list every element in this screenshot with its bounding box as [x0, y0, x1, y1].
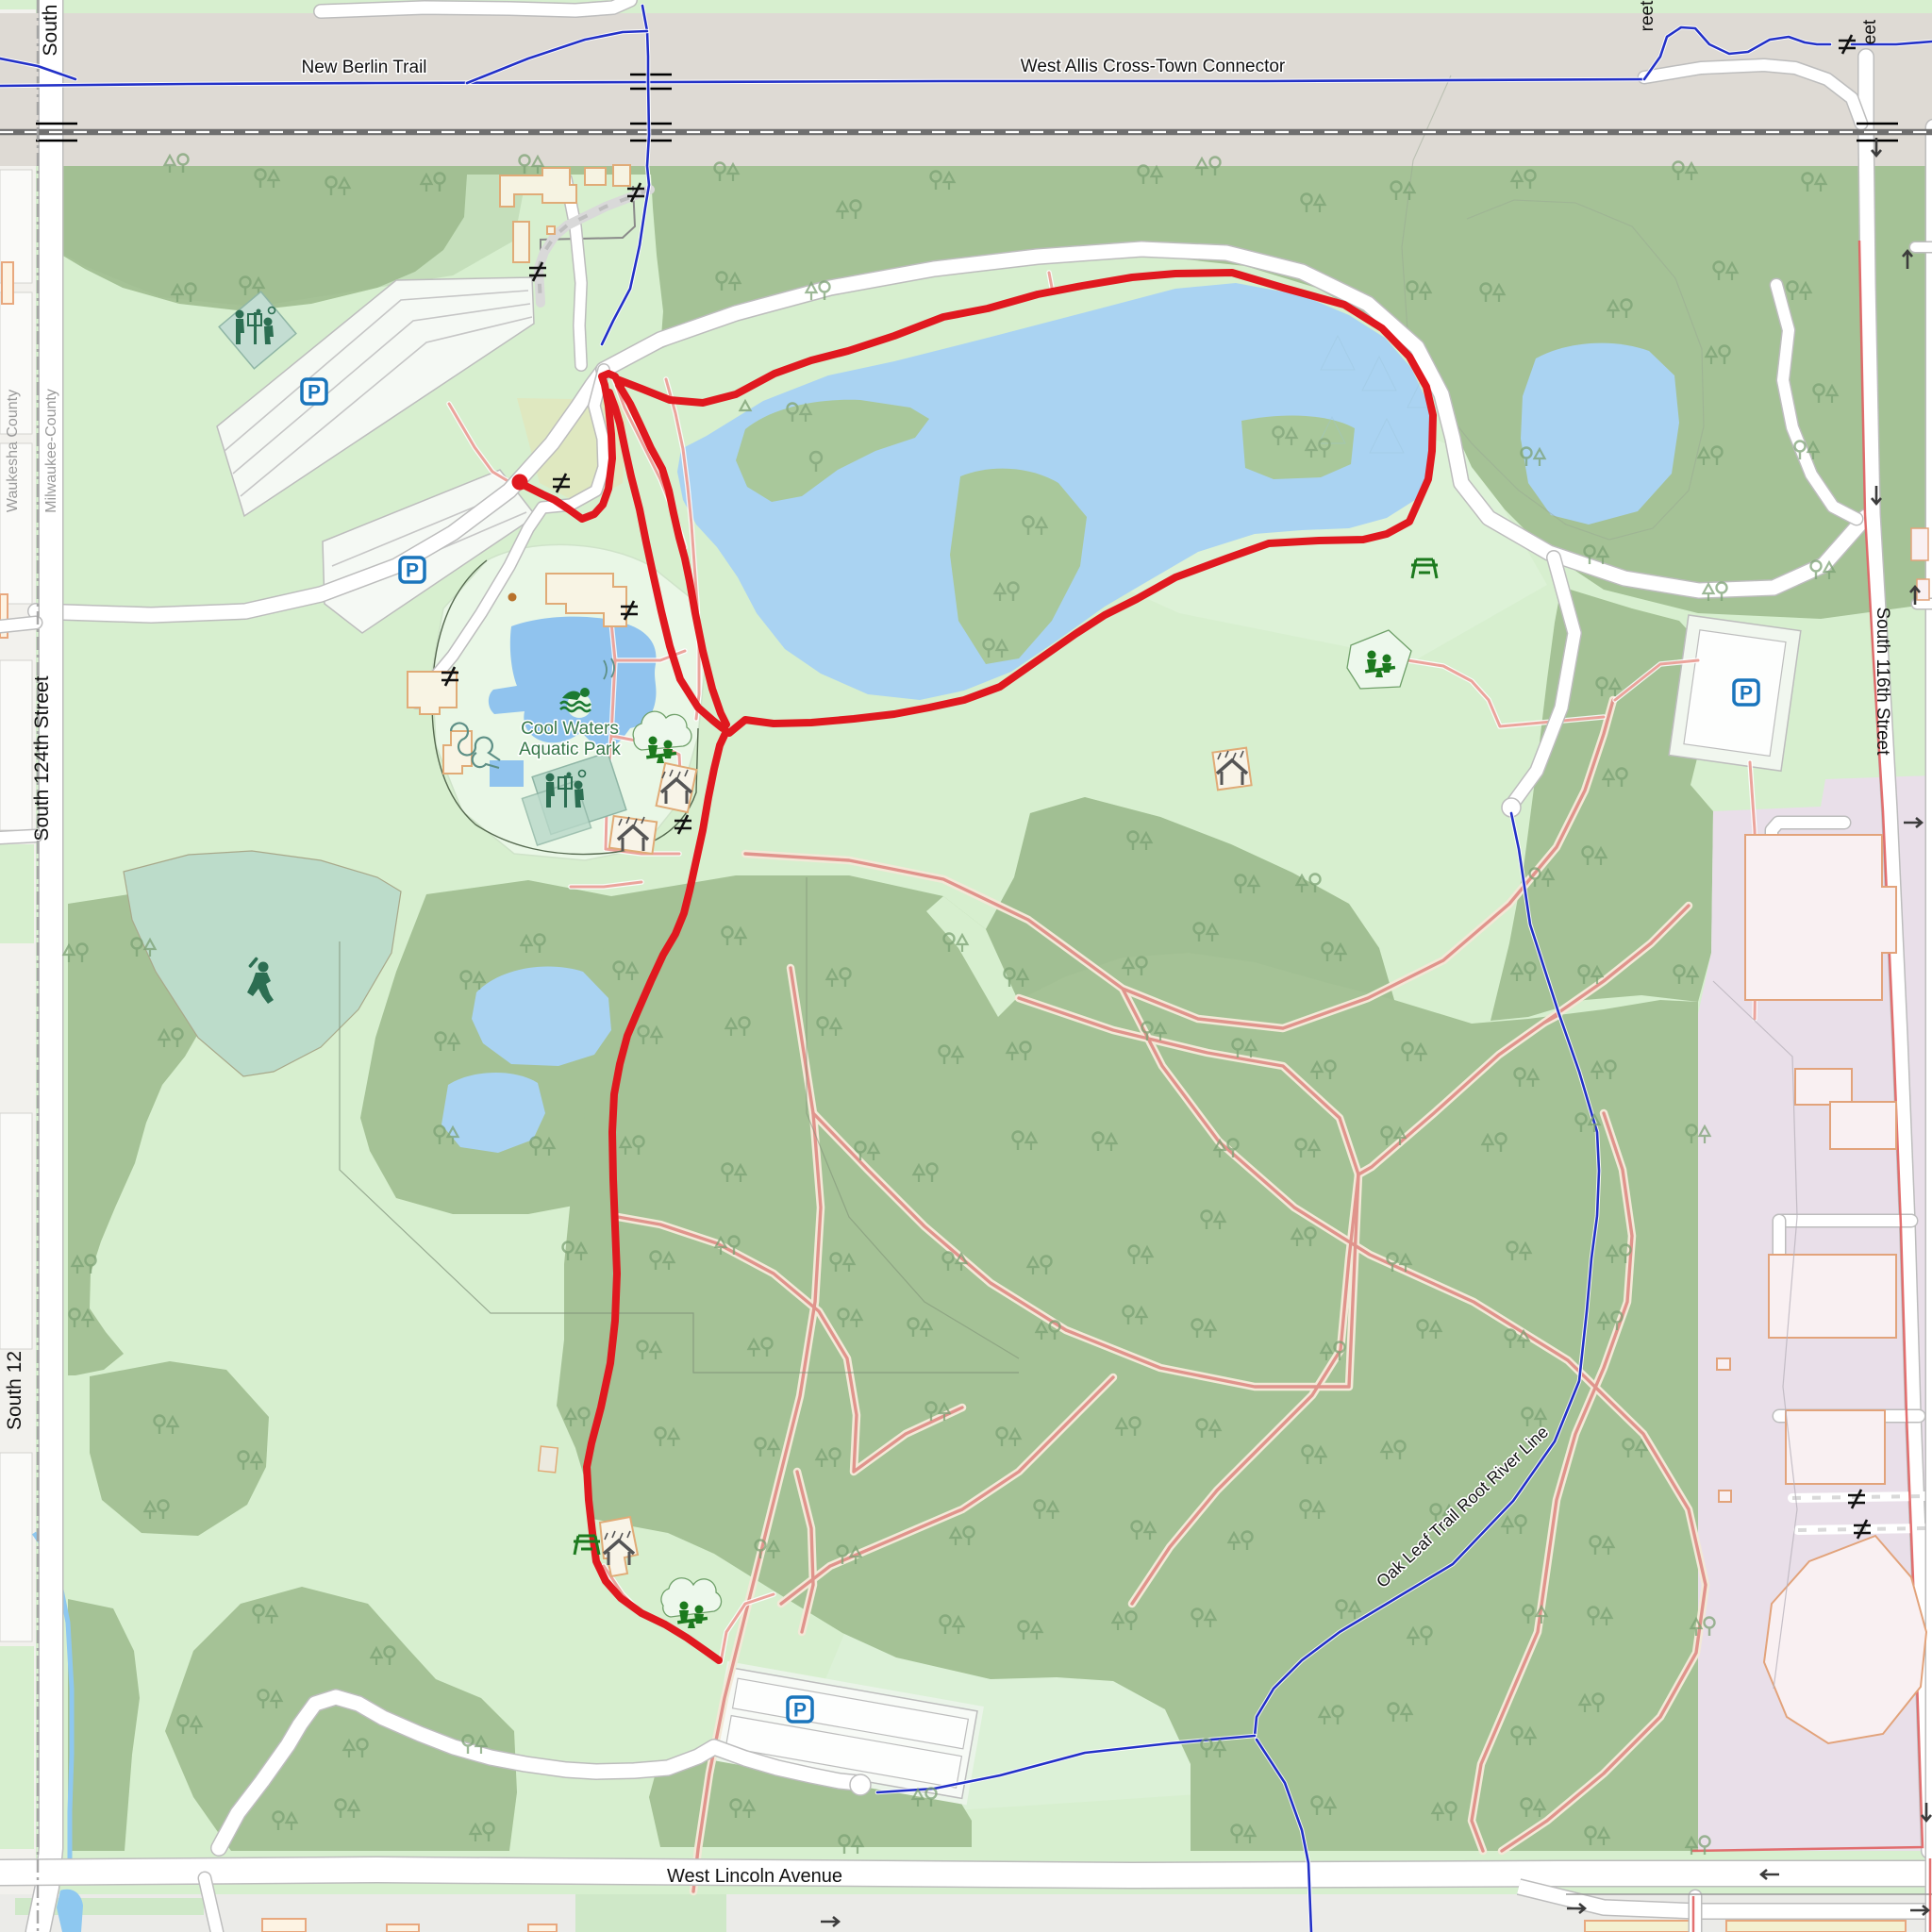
svg-text:Waukesha County: Waukesha County: [5, 390, 21, 512]
svg-text:Milwaukee-County: Milwaukee-County: [43, 389, 59, 513]
svg-text:reet: reet: [1638, 0, 1657, 31]
svg-text:West Lincoln Avenue: West Lincoln Avenue: [667, 1866, 842, 1887]
svg-text:South 116th Street: South 116th Street: [1873, 607, 1892, 756]
svg-text:Aquatic Park: Aquatic Park: [519, 740, 621, 759]
svg-text:South: South: [40, 5, 61, 57]
svg-text:West Allis Cross-Town Connecto: West Allis Cross-Town Connector: [1021, 57, 1286, 76]
svg-text:South 124th Street: South 124th Street: [31, 675, 53, 841]
svg-text:eet: eet: [1860, 19, 1880, 44]
svg-text:New Berlin Trail: New Berlin Trail: [301, 58, 426, 77]
svg-text:South 12: South 12: [4, 1351, 25, 1430]
svg-text:Cool Waters: Cool Waters: [521, 719, 619, 739]
